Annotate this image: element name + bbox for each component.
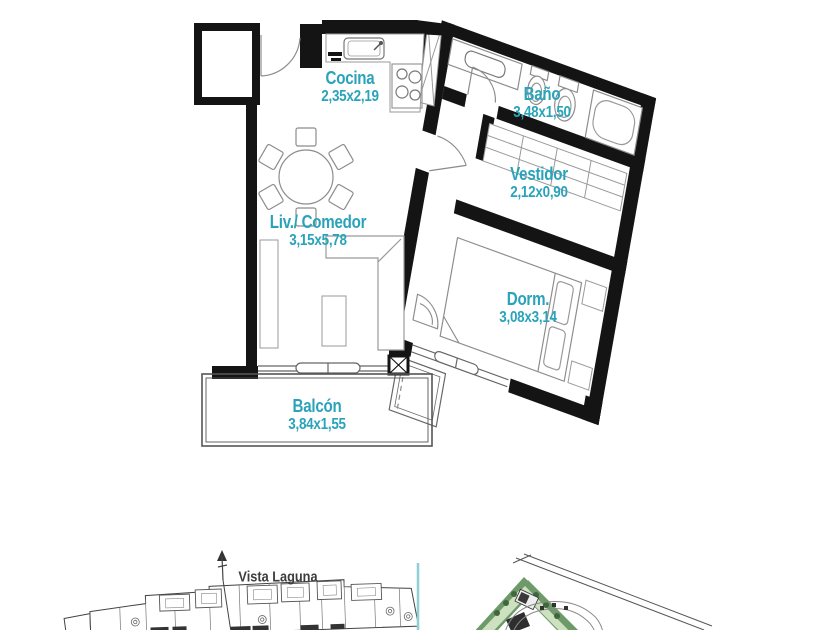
- room-label-cocina: Cocina 2,35x2,19: [321, 69, 379, 105]
- column-x-box: [389, 356, 408, 374]
- room-label-vestidor: Vestidor 2,12x0,90: [510, 165, 568, 201]
- chair: [328, 184, 354, 210]
- floorplan-drawing: [0, 0, 840, 630]
- room-name: Dorm.: [499, 290, 557, 309]
- room-dims: 2,12x0,90: [510, 184, 568, 201]
- room-dims: 3,15x5,78: [270, 232, 366, 249]
- entry-door: [261, 35, 300, 76]
- room-name: Liv./ Comedor: [270, 213, 366, 232]
- bedroom-chair: [413, 294, 442, 328]
- room-dims: 3,48x1,50: [513, 104, 571, 121]
- left-wall: [246, 95, 257, 378]
- floorplan-page: Cocina 2,35x2,19 Baño 3,48x1,50 Vestidor…: [0, 0, 840, 630]
- kitchen-top-wall: [322, 20, 418, 34]
- room-label-bano: Baño 3,48x1,50: [513, 85, 571, 121]
- room-label-dorm: Dorm. 3,08x3,14: [499, 290, 557, 326]
- chair: [258, 144, 284, 170]
- living-sliding-door: [258, 363, 389, 373]
- room-label-living: Liv./ Comedor 3,15x5,78: [270, 213, 366, 249]
- room-name: Balcón: [288, 397, 346, 416]
- site-road: [513, 554, 712, 630]
- entry-wall-stub: [300, 24, 322, 68]
- hood-symbol: [328, 52, 342, 56]
- hall-door: [429, 135, 469, 183]
- chair: [258, 184, 284, 210]
- chair: [328, 144, 354, 170]
- room-name: Cocina: [321, 69, 379, 88]
- nightstand-2: [568, 361, 592, 390]
- sideboard: [260, 240, 278, 348]
- room-dims: 3,08x3,14: [499, 309, 557, 326]
- room-name: Baño: [513, 85, 571, 104]
- coffee-table: [322, 296, 346, 346]
- room-dims: 2,35x2,19: [321, 88, 379, 105]
- entry-closet: [198, 27, 256, 101]
- view-label: Vista Laguna: [238, 569, 317, 586]
- room-dims: 3,84x1,55: [288, 416, 346, 433]
- nightstand: [582, 280, 607, 311]
- bottom-left-wall: [212, 366, 258, 379]
- room-name: Vestidor: [510, 165, 568, 184]
- chair: [296, 128, 316, 146]
- site-map: [472, 554, 712, 630]
- room-label-balcon: Balcón 3,84x1,55: [288, 397, 346, 433]
